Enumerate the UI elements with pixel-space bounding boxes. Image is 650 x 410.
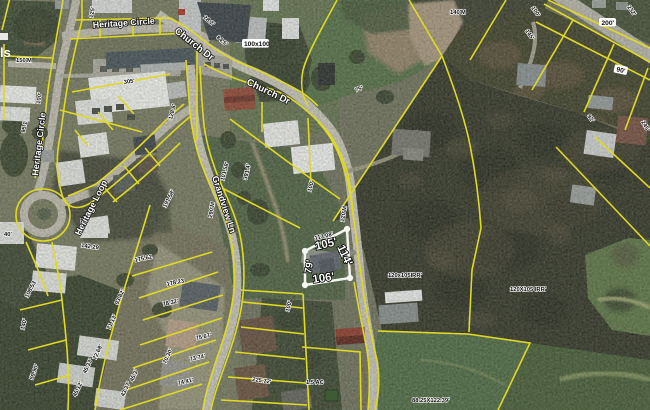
svg-text:1.5 AC: 1.5 AC	[306, 380, 325, 386]
svg-text:79': 79'	[303, 259, 316, 274]
svg-text:150'M: 150'M	[16, 58, 32, 64]
svg-text:100x100: 100x100	[244, 41, 270, 48]
svg-text:88.25X122.39': 88.25X122.39'	[412, 398, 450, 404]
svg-text:200': 200'	[602, 20, 615, 27]
svg-text:120x105IRR': 120x105IRR'	[388, 273, 423, 279]
svg-text:140'M: 140'M	[450, 10, 466, 16]
svg-text:ls: ls	[0, 45, 11, 60]
svg-text:40': 40'	[4, 232, 12, 238]
svg-text:120X105 IRR': 120X105 IRR'	[510, 287, 547, 293]
